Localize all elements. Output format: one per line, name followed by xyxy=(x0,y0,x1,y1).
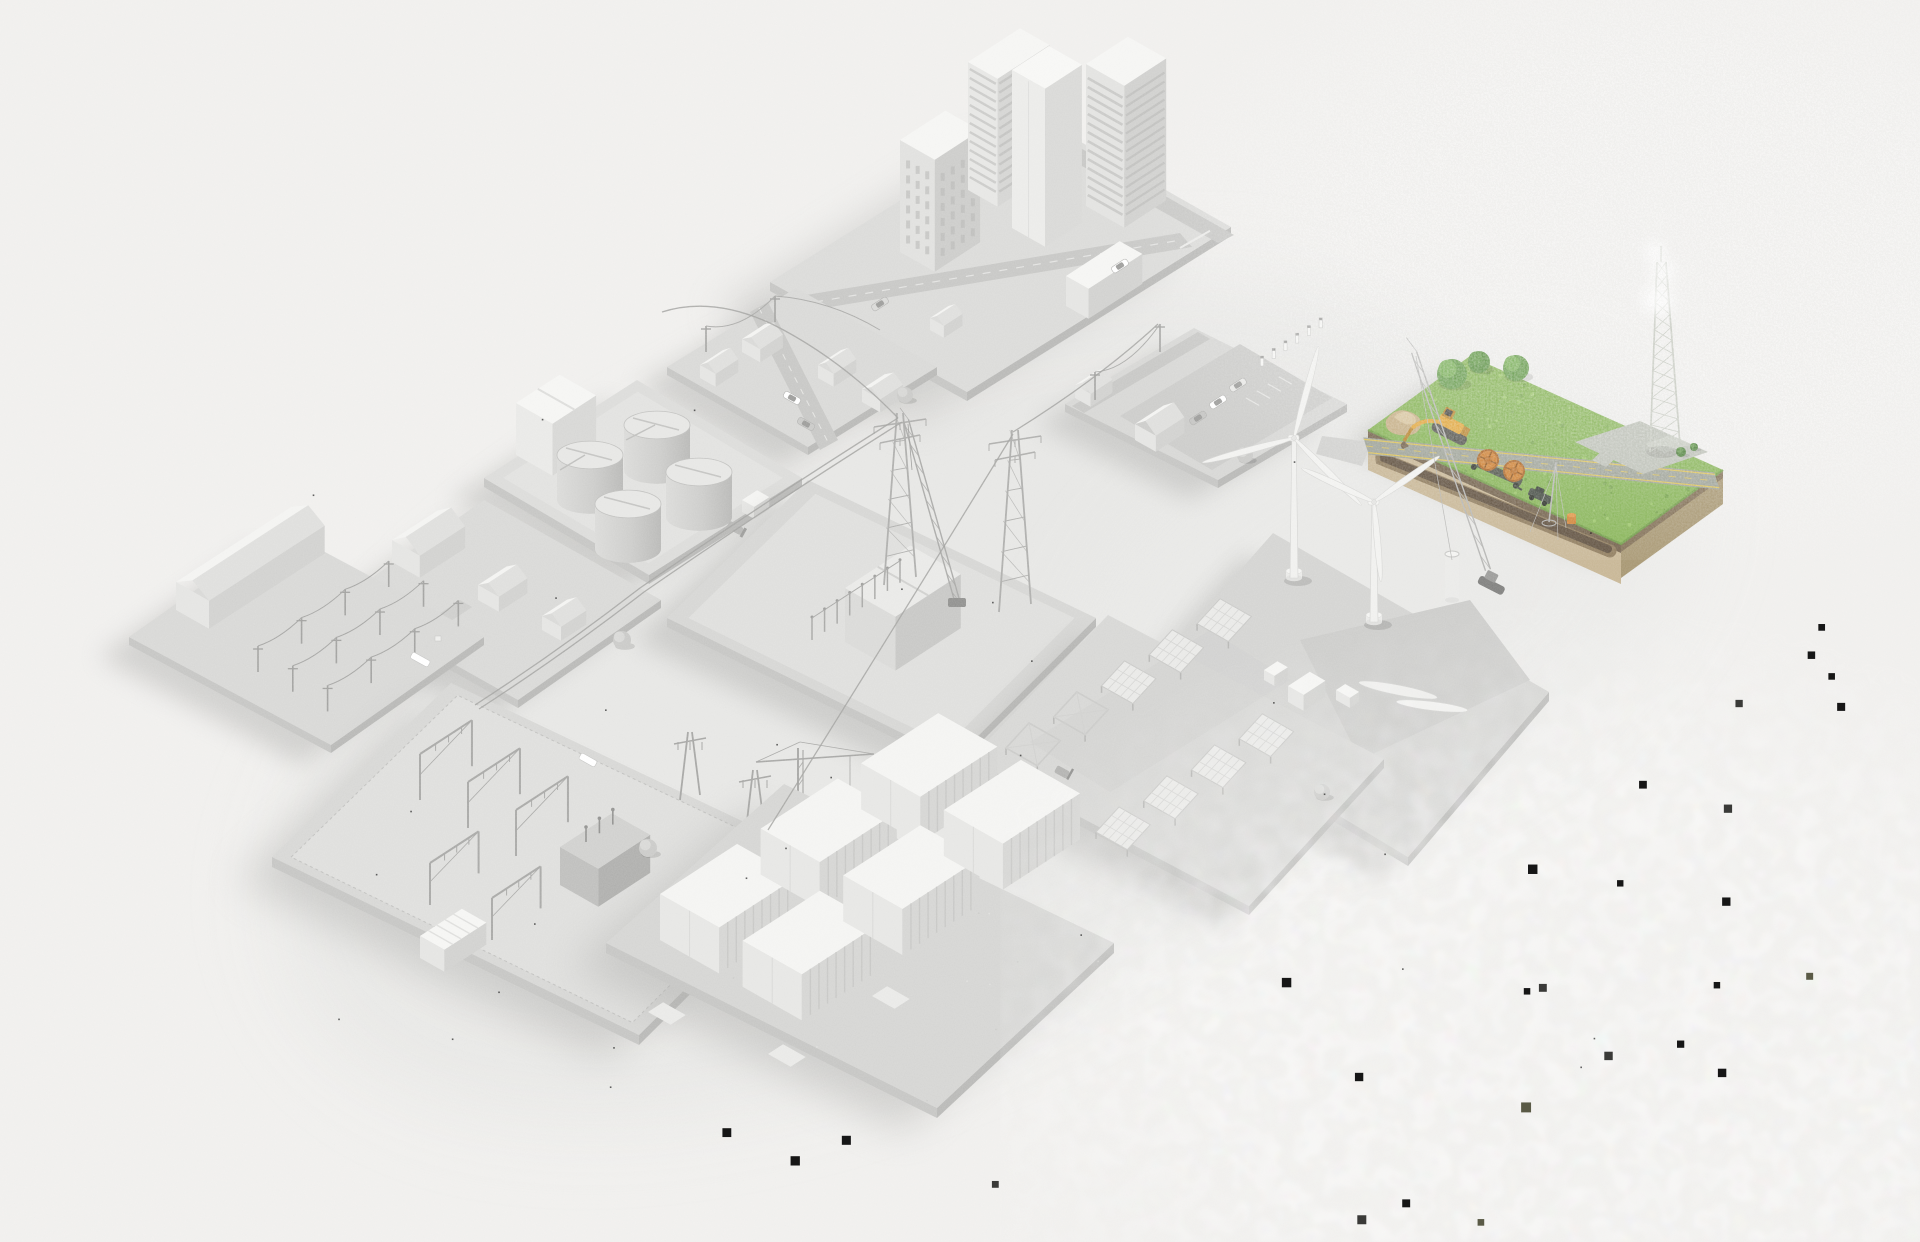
illustration-canvas xyxy=(0,0,1920,1242)
noise-overlay xyxy=(0,0,1920,1242)
isometric-energy-scene xyxy=(0,0,1920,1242)
mosaic-patch-bottom-right xyxy=(1000,560,1920,1242)
speckle-patch-top-right xyxy=(1100,0,1920,560)
